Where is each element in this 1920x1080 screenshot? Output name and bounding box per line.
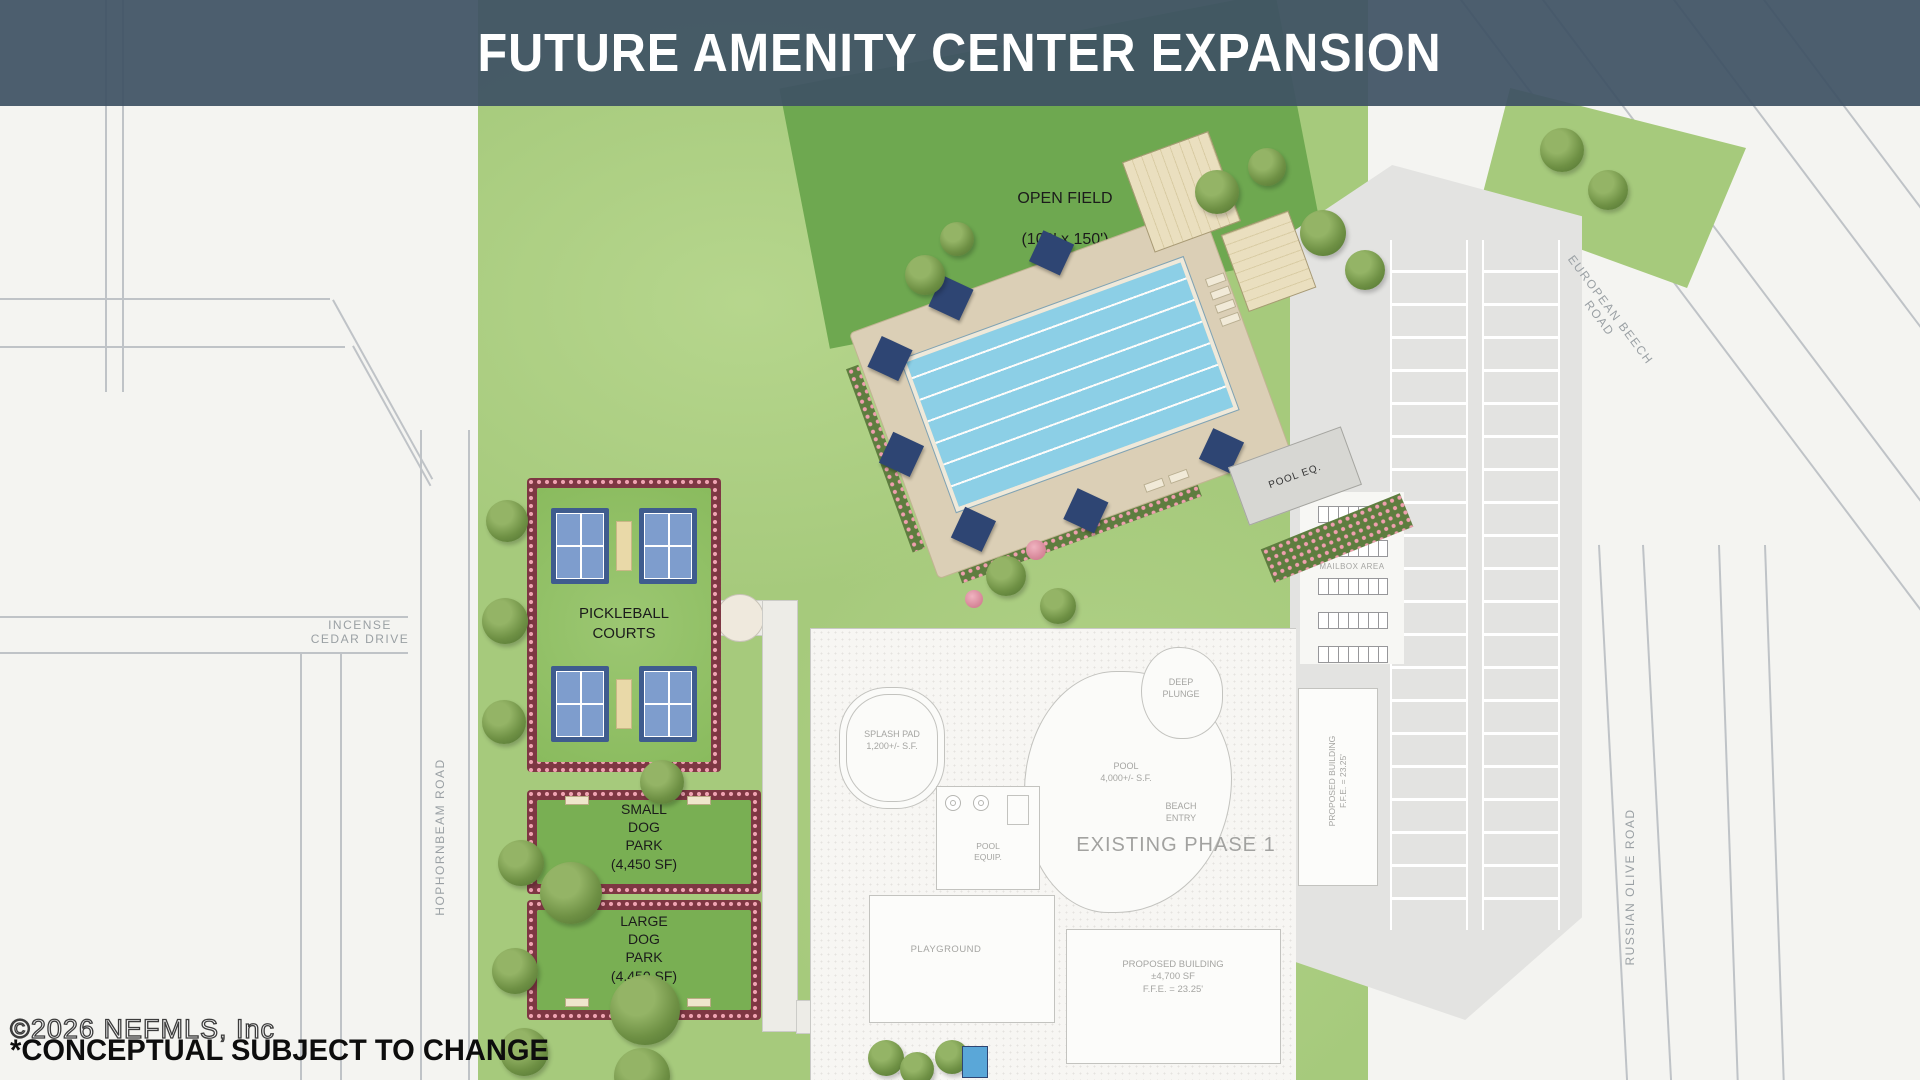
tree <box>1540 128 1584 172</box>
mailbox-unit <box>1318 646 1388 663</box>
road-line <box>1642 545 1673 1080</box>
mailbox-unit <box>1318 612 1388 629</box>
playground-label: PLAYGROUND <box>881 944 1011 956</box>
court-surface <box>556 671 604 737</box>
equipment-box <box>1007 795 1029 825</box>
tree <box>868 1040 904 1076</box>
site-plan: OPEN FIELD (100' x 150') MAILBOX AREA SP… <box>0 0 1920 1080</box>
existing-phase-area: SPLASH PAD 1,200+/- S.F. PLAYGROUND DEEP… <box>810 628 1296 1080</box>
road-line <box>468 430 470 1080</box>
road-line <box>420 430 422 1080</box>
page-title: FUTURE AMENITY CENTER EXPANSION <box>478 22 1442 84</box>
small-dog-park-label: SMALL DOG PARK (4,450 SF) <box>527 800 761 873</box>
conceptual-disclaimer: *CONCEPTUAL SUBJECT TO CHANGE <box>10 1034 549 1068</box>
playground-shape <box>869 895 1055 1023</box>
court-bench-pad <box>616 521 632 571</box>
road-line <box>340 652 342 1080</box>
road-line <box>0 298 330 300</box>
pool-equip-label: POOL EQUIP. <box>941 841 1035 863</box>
tree <box>1345 250 1385 290</box>
tree <box>610 975 680 1045</box>
road-line <box>300 652 302 1080</box>
pickleball-courts-area: PICKLEBALL COURTS <box>527 478 721 772</box>
tree <box>1300 210 1346 256</box>
road-line <box>1718 545 1739 1080</box>
pickleball-court <box>551 666 609 742</box>
tree <box>540 862 602 924</box>
proposed-building-east-label: PROPOSED BUILDING F.F.E. = 23.25' <box>1327 691 1349 871</box>
mailbox-unit <box>1318 578 1388 595</box>
tree <box>482 700 526 744</box>
pickleball-court <box>639 508 697 584</box>
deep-plunge-label: DEEP PLUNGE <box>1121 677 1241 700</box>
tree <box>940 222 974 256</box>
tree <box>1195 170 1239 214</box>
tree <box>986 556 1026 596</box>
road-line <box>0 652 408 654</box>
beach-entry-label: BEACH ENTRY <box>1121 801 1241 824</box>
court-surface <box>644 671 692 737</box>
court-surface <box>556 513 604 579</box>
pickleball-lawn: PICKLEBALL COURTS <box>537 488 711 762</box>
court-bench-pad <box>616 679 632 729</box>
tree <box>900 1052 934 1080</box>
pool-equip-shape <box>936 786 1040 890</box>
tree <box>905 255 945 295</box>
tree <box>498 840 544 886</box>
road-label-hophornbeam-road: HOPHORNBEAM ROAD <box>433 727 447 947</box>
tree <box>1040 588 1076 624</box>
flower-bush <box>965 590 983 608</box>
walkway <box>762 600 798 1032</box>
flower-bush <box>1026 540 1046 560</box>
road-label-russian-olive-road: RUSSIAN OLIVE ROAD <box>1623 777 1637 997</box>
bench <box>565 998 589 1007</box>
existing-phase-title: EXISTING PHASE 1 <box>1046 832 1306 858</box>
road-label-incense-cedar-drive: INCENSE CEDAR DRIVE <box>280 618 440 646</box>
pickleball-courts-label: PICKLEBALL COURTS <box>537 604 711 643</box>
walkway-plaza <box>716 594 764 642</box>
pool-label: POOL 4,000+/- S.F. <box>1066 761 1186 784</box>
road-line <box>1764 545 1785 1080</box>
proposed-building-main-label: PROPOSED BUILDING ±4,700 SF F.F.E. = 23.… <box>1073 959 1273 996</box>
proposed-building-main-shape <box>1066 929 1281 1064</box>
road-line <box>0 346 345 348</box>
tree <box>1248 148 1286 186</box>
splash-pad-label: SPLASH PAD 1,200+/- S.F. <box>839 729 945 752</box>
pool-eq-label: POOL EQ. <box>1267 461 1323 490</box>
tree <box>482 598 528 644</box>
equipment-circle <box>973 795 989 811</box>
tree <box>486 500 528 542</box>
equipment-circle <box>945 795 961 811</box>
parking-stalls <box>1482 240 1560 930</box>
mini-pool <box>962 1046 988 1078</box>
tree <box>640 760 684 804</box>
bench <box>687 998 711 1007</box>
pickleball-court <box>639 666 697 742</box>
tree <box>492 948 538 994</box>
road-line <box>332 300 433 480</box>
pickleball-court <box>551 508 609 584</box>
tree <box>1588 170 1628 210</box>
court-surface <box>644 513 692 579</box>
title-banner: FUTURE AMENITY CENTER EXPANSION <box>0 0 1920 106</box>
